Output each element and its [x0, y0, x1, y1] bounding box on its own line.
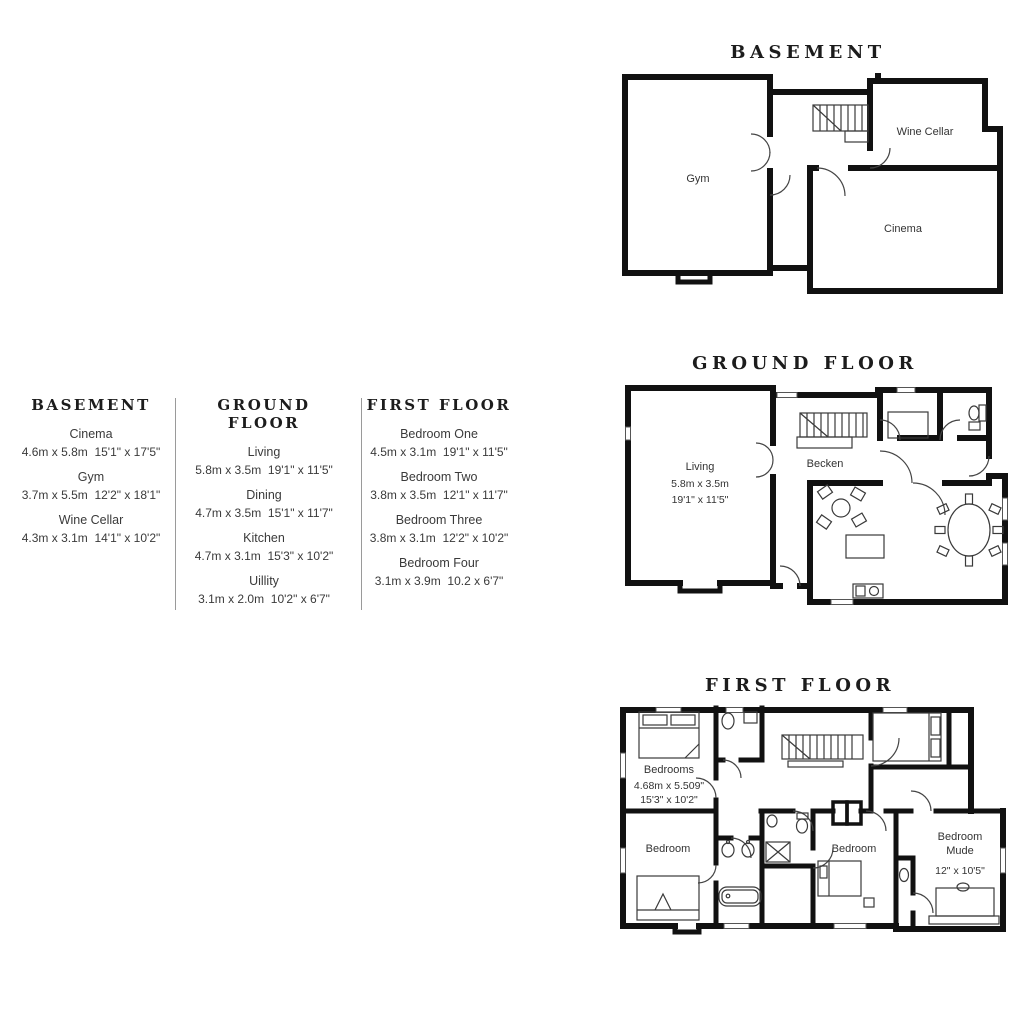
room-name: Gym: [18, 470, 164, 484]
master-ensuite-fixtures: [900, 869, 909, 882]
bed-icon-bedroom3: [818, 861, 874, 907]
room-metric: 5.8m x 3.5m: [195, 463, 261, 477]
sitting-area: [817, 485, 884, 558]
room-dim-master: 12" x 10'5": [935, 865, 985, 877]
window: [897, 388, 915, 393]
bed-icon-bedroom2: [637, 876, 699, 920]
wc-fixtures: [766, 813, 808, 862]
pillow-icon: [931, 739, 940, 757]
room-dims: 3.1m x 3.9m 10.2 x 6'7": [366, 574, 512, 588]
legend-room: Bedroom Two 3.8m x 3.5m 12'1" x 11'7": [366, 470, 512, 502]
legend-title-first: FIRST FLOOR: [366, 396, 512, 414]
legend-column-basement: BASEMENT Cinema 4.6m x 5.8m 15'1" x 17'5…: [18, 396, 164, 556]
side-table-icon: [864, 898, 874, 907]
ground-plan-title: GROUND FLOOR: [610, 353, 1000, 374]
window: [621, 848, 626, 873]
legend-room: Gym 3.7m x 5.5m 12'2" x 18'1": [18, 470, 164, 502]
room-name: Bedroom Two: [366, 470, 512, 484]
door-arc: [913, 483, 945, 515]
legend-room: Living 5.8m x 3.5m 19'1" x 11'5": [186, 445, 342, 477]
room-dims: 4.7m x 3.5m 15'1" x 11'7": [186, 506, 342, 520]
window: [1001, 848, 1006, 873]
room-dims: 4.3m x 3.1m 14'1" x 10'2": [18, 531, 164, 545]
stairs-icon: [813, 105, 868, 142]
room-metric: 3.8m x 3.5m: [370, 488, 436, 502]
room-dim-bedroom1-imperial: 15'3" x 10'2": [640, 794, 698, 806]
room-dim-bedroom1-metric: 4.68m x 5.509": [634, 780, 705, 792]
door-arc: [871, 738, 899, 766]
sink-icon: [870, 587, 879, 596]
table-icon: [832, 499, 850, 517]
room-label-wine-cellar: Wine Cellar: [897, 126, 954, 138]
bathtub-icon: [722, 890, 758, 903]
first-plan-title: FIRST FLOOR: [605, 675, 995, 696]
chair-icon: [937, 546, 949, 557]
bathroom-fixtures: [719, 841, 761, 907]
pillow-icon: [931, 717, 940, 735]
first-floorplan: Bedrooms 4.68m x 5.509" 15'3" x 10'2" Be…: [611, 698, 1015, 938]
room-dims: 3.8m x 3.5m 12'1" x 11'7": [366, 488, 512, 502]
room-dims: 4.6m x 5.8m 15'1" x 17'5": [18, 445, 164, 459]
door-arc: [793, 811, 813, 831]
legend-room: Uillity 3.1m x 2.0m 10'2" x 6'7": [186, 574, 342, 606]
room-name: Bedroom One: [366, 427, 512, 441]
legend-room: Cinema 4.6m x 5.8m 15'1" x 17'5": [18, 427, 164, 459]
ensuite-fixtures: [722, 712, 757, 729]
room-dims: 4.7m x 3.1m 15'3" x 10'2": [186, 549, 342, 563]
room-label-living: Living: [686, 461, 715, 473]
window: [1003, 498, 1008, 520]
chair-icon: [817, 515, 832, 529]
sink-icon: [969, 422, 980, 430]
door-arc: [817, 168, 845, 196]
room-metric: 4.5m x 3.1m: [370, 445, 436, 459]
room-imperial: 15'3" x 10'2": [267, 549, 333, 563]
door-arc: [866, 811, 886, 831]
room-name: Bedroom Three: [366, 513, 512, 527]
door-arc: [698, 865, 716, 883]
legend-title-ground: GROUND FLOOR: [186, 396, 342, 432]
window: [1003, 543, 1008, 565]
ground-floorplan: Living 5.8m x 3.5m 19'1" x 11'5" Becken: [613, 378, 1017, 625]
bay-step: [680, 583, 720, 591]
sink-icon: [742, 843, 754, 857]
room-metric: 4.6m x 5.8m: [22, 445, 88, 459]
room-metric: 4.7m x 3.5m: [195, 506, 261, 520]
room-dims: 3.8m x 3.1m 12'2" x 10'2": [366, 531, 512, 545]
pillow-icon: [643, 715, 667, 725]
window: [626, 427, 631, 440]
room-label-bedroom1: Bedrooms: [644, 764, 695, 776]
room-metric: 3.7m x 5.5m: [22, 488, 88, 502]
window: [777, 393, 797, 398]
door-arc: [911, 791, 931, 811]
room-imperial: 15'1" x 11'7": [268, 506, 333, 520]
door-arc: [723, 760, 741, 778]
chair-icon: [937, 504, 949, 515]
stairs-icon: [782, 735, 863, 767]
room-dim-living-metric: 5.8m x 3.5m: [671, 478, 729, 490]
door-arc: [880, 451, 912, 483]
room-metric: 4.3m x 3.1m: [22, 531, 88, 545]
chair-icon: [851, 487, 866, 501]
room-imperial: 19'1" x 11'5": [443, 445, 508, 459]
room-dims: 5.8m x 3.5m 19'1" x 11'5": [186, 463, 342, 477]
room-dims: 3.7m x 5.5m 12'2" x 18'1": [18, 488, 164, 502]
room-label-master: Bedroom: [938, 831, 983, 843]
door-arc: [813, 848, 833, 868]
bay-step: [675, 926, 699, 932]
sink-icon: [722, 843, 734, 857]
sink-icon: [767, 815, 777, 827]
dining-table-icon: [948, 504, 990, 556]
legend-room: Kitchen 4.7m x 3.1m 15'3" x 10'2": [186, 531, 342, 563]
legend-divider: [175, 398, 176, 610]
door-arc: [913, 893, 933, 913]
stairs-icon: [797, 413, 867, 448]
room-metric: 3.1m x 3.9m: [375, 574, 441, 588]
chair-icon: [989, 546, 1001, 557]
basement-floorplan: Gym Wine Cellar Cinema: [613, 64, 1017, 302]
bed-icon-bedroom1: [639, 712, 699, 758]
dining-set: [935, 494, 1003, 566]
room-dims: 3.1m x 2.0m 10'2" x 6'7": [186, 592, 342, 606]
chair-icon: [852, 513, 867, 527]
legend-title-basement: BASEMENT: [18, 396, 164, 414]
room-label-bedroom3: Bedroom: [832, 843, 877, 855]
room-label-cinema: Cinema: [884, 223, 923, 235]
chair-icon: [993, 527, 1003, 534]
legend-column-ground: GROUND FLOOR Living 5.8m x 3.5m 19'1" x …: [186, 396, 342, 617]
room-name: Uillity: [186, 574, 342, 588]
toilet-icon: [797, 819, 808, 833]
legend-divider: [361, 398, 362, 610]
chair-icon: [935, 527, 945, 534]
room-imperial: 14'1" x 10'2": [94, 531, 160, 545]
room-name: Wine Cellar: [18, 513, 164, 527]
room-name: Bedroom Four: [366, 556, 512, 570]
room-name: Dining: [186, 488, 342, 502]
room-name: Cinema: [18, 427, 164, 441]
room-metric: 3.8m x 3.1m: [370, 531, 436, 545]
basement-plan-title: BASEMENT: [613, 42, 1003, 63]
room-label-gym: Gym: [686, 173, 709, 185]
legend-room: Bedroom Three 3.8m x 3.1m 12'2" x 10'2": [366, 513, 512, 545]
legend-room: Wine Cellar 4.3m x 3.1m 14'1" x 10'2": [18, 513, 164, 545]
room-imperial: 10.2 x 6'7": [447, 574, 503, 588]
floorplan-page: BASEMENT Cinema 4.6m x 5.8m 15'1" x 17'5…: [0, 0, 1024, 1024]
legend-room: Dining 4.7m x 3.5m 15'1" x 11'7": [186, 488, 342, 520]
cabinet-icon: [744, 712, 757, 723]
toilet-icon: [969, 406, 979, 420]
sink-icon: [722, 713, 734, 729]
door-arcs: [756, 420, 989, 586]
bed-icon-master: [929, 883, 999, 924]
chair-icon: [818, 485, 833, 499]
drain-icon: [726, 894, 730, 898]
window: [831, 600, 853, 605]
room-dim-living-imperial: 19'1" x 11'5": [672, 494, 729, 506]
room-imperial: 12'2" x 10'2": [442, 531, 508, 545]
toilet-icon: [979, 405, 986, 421]
room-label-hall: Becken: [807, 458, 844, 470]
pillow-icon: [820, 866, 827, 878]
island-icon: [846, 535, 884, 558]
room-dims: 4.5m x 3.1m 19'1" x 11'5": [366, 445, 512, 459]
room-imperial: 15'1" x 17'5": [94, 445, 160, 459]
room-imperial: 12'2" x 18'1": [94, 488, 160, 502]
bed-icon-top-right: [873, 713, 941, 761]
room-label-master-sub: Mude: [946, 845, 974, 857]
legend-room: Bedroom Four 3.1m x 3.9m 10.2 x 6'7": [366, 556, 512, 588]
legend-room: Bedroom One 4.5m x 3.1m 19'1" x 11'5": [366, 427, 512, 459]
room-imperial: 19'1" x 11'5": [268, 463, 333, 477]
first-walls: [623, 708, 1003, 932]
room-imperial: 10'2" x 6'7": [271, 592, 330, 606]
room-label-bedroom2: Bedroom: [646, 843, 691, 855]
room-metric: 3.1m x 2.0m: [198, 592, 264, 606]
pillow-icon: [957, 883, 969, 891]
window: [724, 924, 749, 929]
room-metric: 4.7m x 3.1m: [195, 549, 261, 563]
window: [726, 708, 743, 713]
window: [834, 924, 866, 929]
toilet-icon: [900, 869, 909, 882]
room-name: Kitchen: [186, 531, 342, 545]
sink-unit: [853, 584, 883, 598]
window: [883, 708, 907, 713]
legend-column-first: FIRST FLOOR Bedroom One 4.5m x 3.1m 19'1…: [366, 396, 512, 599]
chair-icon: [966, 494, 973, 504]
chair-icon: [966, 556, 973, 566]
pillow-icon: [671, 715, 695, 725]
chair-icon: [989, 504, 1001, 515]
room-imperial: 12'1" x 11'7": [443, 488, 508, 502]
room-name: Living: [186, 445, 342, 459]
window: [621, 753, 626, 778]
